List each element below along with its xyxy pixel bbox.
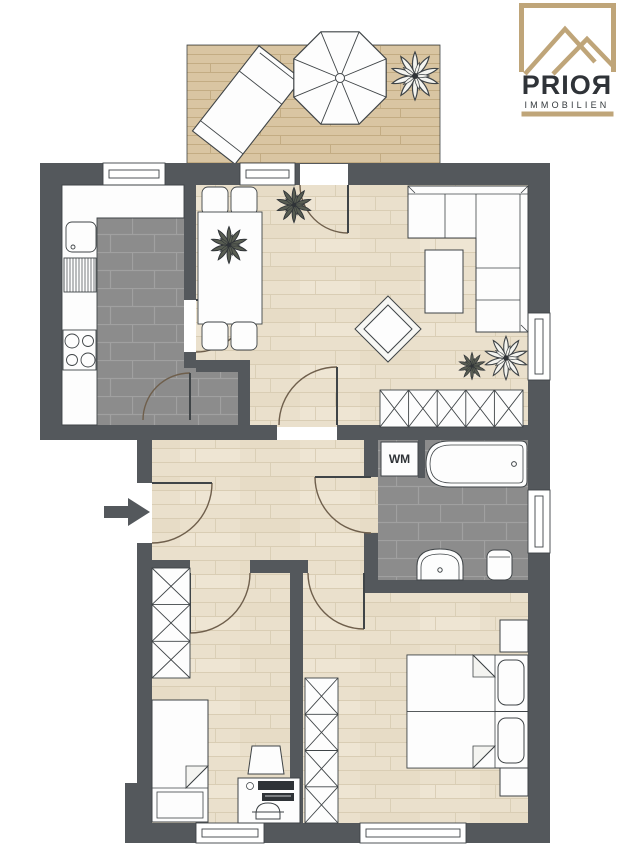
- wall-kitchen-dining: [184, 185, 196, 300]
- brand-logo: PRIOЯ IMMOBILIEN: [503, 0, 631, 125]
- wall-bottom: [125, 823, 550, 843]
- nightstand: [500, 766, 528, 796]
- dining-chair: [202, 187, 228, 215]
- hallway-floor: [152, 440, 378, 573]
- window-dining: [240, 163, 295, 185]
- terrace: [187, 32, 440, 165]
- dining-chair: [202, 322, 228, 350]
- pantry-floor: [184, 368, 238, 425]
- monitor-icon: [258, 781, 294, 790]
- desk: [238, 778, 300, 823]
- dining-chair: [231, 187, 257, 215]
- kitchen-floor: [97, 218, 184, 425]
- window-bedroom: [360, 823, 466, 843]
- window-office: [196, 823, 264, 843]
- window-living: [528, 313, 550, 380]
- toilet: [487, 550, 512, 580]
- washing-machine: WM: [381, 442, 418, 476]
- stool: [248, 746, 284, 774]
- brand-tagline: IMMOBILIEN: [503, 100, 631, 110]
- pillow: [498, 718, 524, 763]
- parasol: [294, 32, 386, 124]
- wall-pillar: [184, 352, 196, 368]
- dining-chair: [231, 322, 257, 350]
- coffee-table: [425, 250, 463, 313]
- wardrobe: [152, 568, 190, 678]
- wall-left-mid-b: [137, 543, 152, 823]
- wall-hall-top-a: [250, 425, 277, 440]
- bathtub: [426, 441, 527, 487]
- keyboard-icon: [262, 793, 294, 801]
- washing-machine-label: WM: [389, 452, 410, 466]
- mug-icon: [247, 783, 254, 790]
- sideboard: [380, 390, 523, 427]
- pillow: [498, 660, 524, 705]
- floor-plan: WM: [0, 0, 633, 855]
- floor-plan-page: WM: [0, 0, 633, 855]
- bathroom-sink: [417, 549, 463, 580]
- wall-bath-bottom: [364, 580, 528, 593]
- kitchen-sink-drain: [71, 245, 75, 249]
- single-bed: [152, 700, 208, 822]
- nightstand: [500, 620, 528, 652]
- wall-left-mid-a: [137, 440, 152, 483]
- double-bed: [407, 655, 528, 768]
- terrace-door-opening: [300, 164, 348, 185]
- window-bathroom: [528, 490, 550, 553]
- wall-bath-left-a: [364, 440, 378, 477]
- wall-wm-stub: [418, 440, 425, 478]
- kitchen-sink: [66, 222, 96, 252]
- wall-left-upper: [40, 185, 62, 440]
- window-kitchen: [103, 163, 165, 185]
- wardrobe: [305, 678, 338, 823]
- wall-pantry-right: [238, 360, 250, 440]
- brand-name: PRIOЯ: [503, 72, 631, 99]
- drainboard: [64, 258, 96, 292]
- stove: [63, 330, 96, 370]
